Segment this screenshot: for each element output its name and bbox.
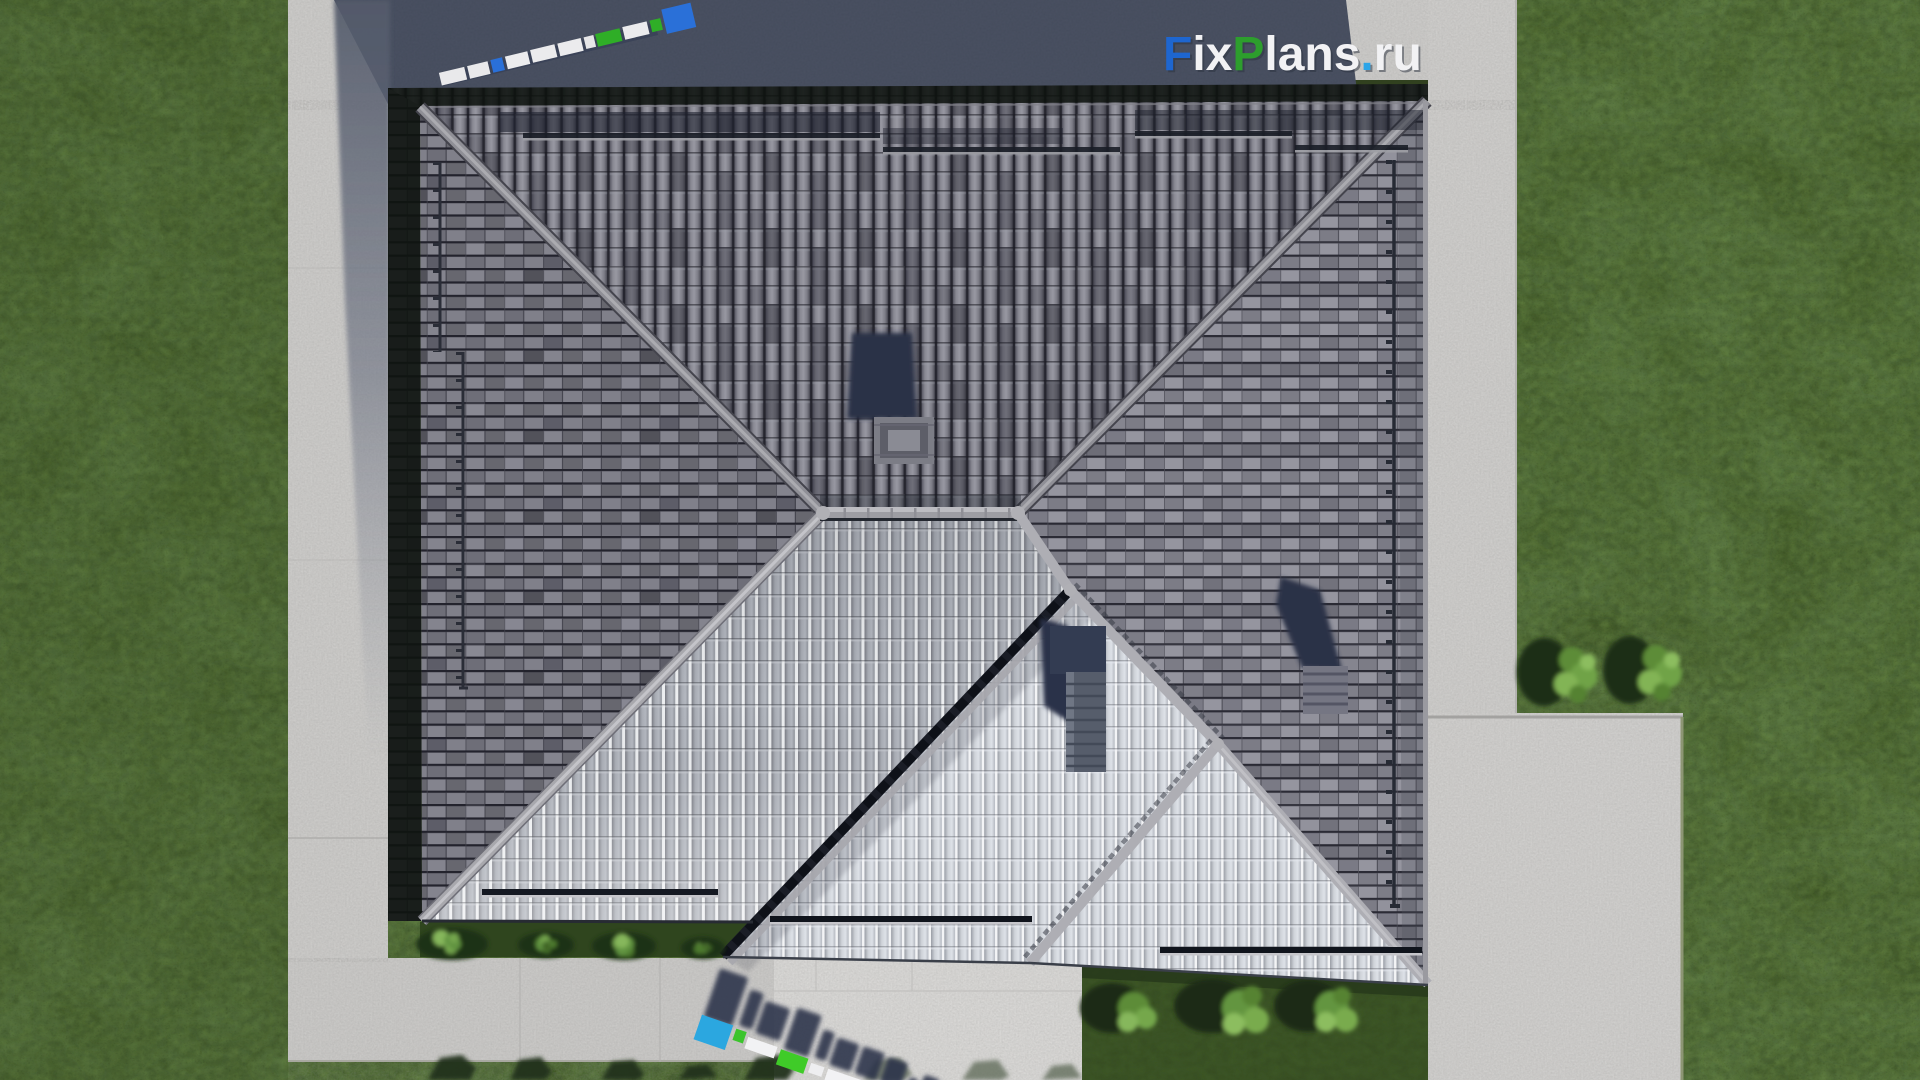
svg-text:FixPlans.ru: FixPlans.ru	[1163, 28, 1422, 81]
